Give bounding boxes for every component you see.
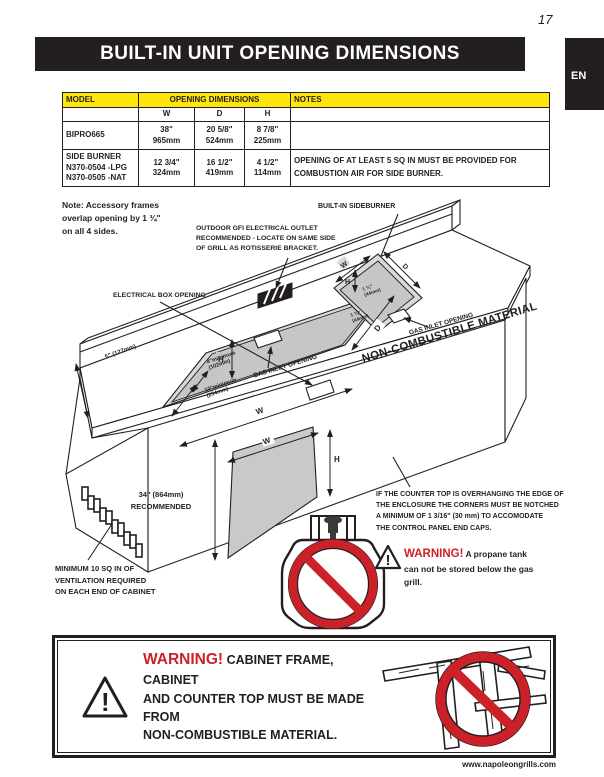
gfi-outlet-label: OUTDOOR GFI ELECTRICAL OUTLET RECOMMENDE… xyxy=(196,224,336,255)
ventilation-note: MINIMUM 10 SQ IN OF VENTILATION REQUIRED… xyxy=(55,563,155,598)
label-line: VENTILATION REQUIRED xyxy=(55,575,155,587)
warning-triangle-icon: ! xyxy=(81,675,129,719)
propane-warning: WARNING! A propane tank can not be store… xyxy=(404,546,533,589)
dim-letter-h: H xyxy=(334,455,340,464)
warning-word: WARNING! xyxy=(404,548,463,560)
label-line: 34" (864mm) xyxy=(115,489,207,501)
dim-34in-label: 34" (864mm) RECOMMENDED xyxy=(115,489,207,513)
dim-letter-h: H xyxy=(345,279,350,286)
label-line: ON EACH END OF CABINET xyxy=(55,586,155,598)
label-line: grill. xyxy=(404,576,533,589)
label-line: OUTDOOR GFI ELECTRICAL OUTLET xyxy=(196,224,336,234)
label-line: AND COUNTER TOP MUST BE MADE FROM xyxy=(143,692,364,724)
label-line: THE ENCLOSURE THE CORNERS MUST BE NOTCHE… xyxy=(376,500,564,511)
warning-box-text: WARNING! CABINET FRAME, CABINET AND COUN… xyxy=(143,649,379,744)
warning-word: WARNING! xyxy=(143,651,223,668)
website-url: www.napoleongrills.com xyxy=(400,760,556,769)
label-line: OF GRILL AS ROTISSERIE BRACKET. xyxy=(196,244,336,254)
manual-page: 17 BUILT-IN UNIT OPENING DIMENSIONS EN M… xyxy=(0,0,604,777)
warning-box: ! WARNING! CABINET FRAME, CABINET AND CO… xyxy=(52,635,556,758)
overhang-note: IF THE COUNTER TOP IS OVERHANGING THE ED… xyxy=(376,489,564,534)
label-line: WARNING! A propane tank xyxy=(404,546,533,563)
svg-text:!: ! xyxy=(101,687,110,717)
label-line: A MINIMUM OF 1 3/16" (30 mm) TO ACCOMODA… xyxy=(376,511,564,522)
sideburner-label: BUILT-IN SIDEBURNER xyxy=(318,202,395,212)
label-line: NON-COMBUSTIBLE MATERIAL. xyxy=(143,728,337,742)
label-line: THE CONTROL PANEL END CAPS. xyxy=(376,523,564,534)
label-line: RECOMMENDED xyxy=(115,501,207,513)
propane-tank-prohibited xyxy=(282,516,384,629)
label-line: RECOMMENDED - LOCATE ON SAME SIDE xyxy=(196,234,336,244)
label-line: A propane tank xyxy=(465,549,527,559)
label-line: MINIMUM 10 SQ IN OF xyxy=(55,563,155,575)
label-line: can not be stored below the gas xyxy=(404,563,533,576)
label-line: IF THE COUNTER TOP IS OVERHANGING THE ED… xyxy=(376,489,564,500)
combustible-frame-prohibited-art xyxy=(379,641,547,753)
electrical-box-label: ELECTRICAL BOX OPENING xyxy=(113,291,206,301)
svg-text:!: ! xyxy=(386,552,391,569)
